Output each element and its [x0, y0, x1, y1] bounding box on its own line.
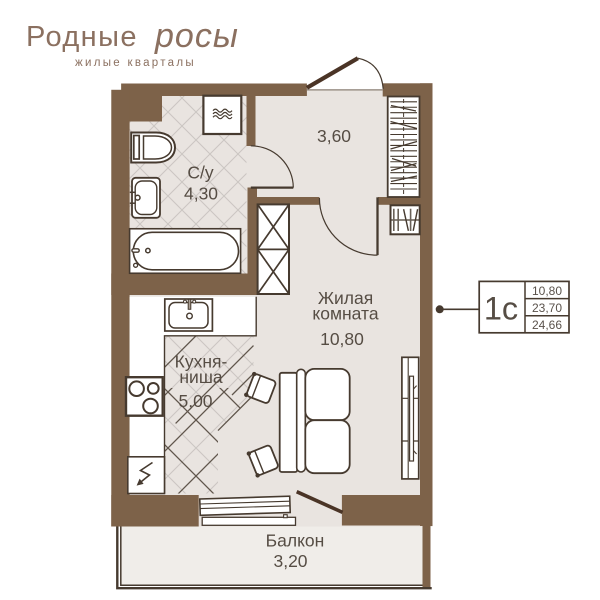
svg-text:23,70: 23,70 — [532, 301, 562, 315]
svg-text:10,80: 10,80 — [320, 329, 364, 349]
svg-text:3,20: 3,20 — [273, 551, 307, 571]
svg-text:комната: комната — [312, 304, 378, 324]
svg-text:жилые кварталы: жилые кварталы — [75, 57, 196, 69]
svg-text:ниша: ниша — [179, 367, 222, 387]
svg-text:1с: 1с — [484, 291, 518, 327]
svg-text:4,30: 4,30 — [184, 184, 218, 204]
svg-text:24,66: 24,66 — [532, 318, 562, 332]
svg-text:3,60: 3,60 — [317, 126, 351, 146]
svg-text:10,80: 10,80 — [532, 284, 562, 298]
svg-text:С/у: С/у — [187, 163, 214, 183]
svg-text:5,00: 5,00 — [178, 391, 212, 411]
svg-text:Балкон: Балкон — [266, 531, 325, 551]
svg-text:Родные: Родные — [26, 21, 138, 53]
svg-text:росы: росы — [154, 17, 239, 55]
